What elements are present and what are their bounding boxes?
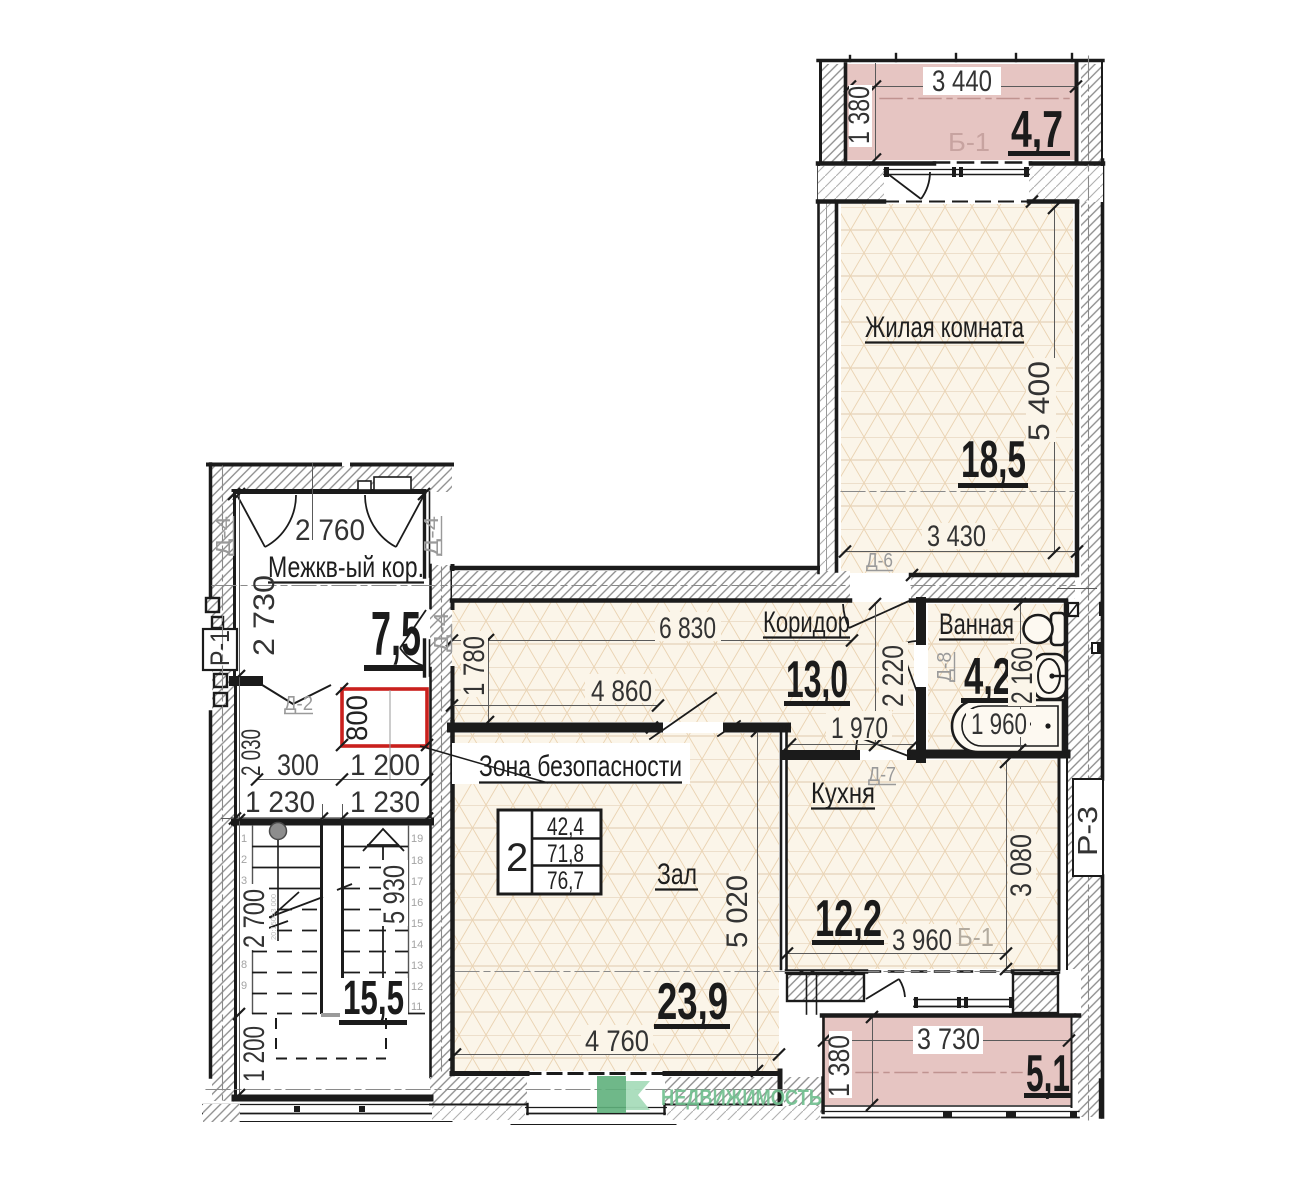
svg-text:4 860: 4 860 (591, 675, 652, 708)
svg-text:1 380: 1 380 (843, 86, 876, 144)
svg-text:3 430: 3 430 (927, 520, 986, 553)
svg-text:23,9: 23,9 (657, 973, 728, 1031)
svg-text:13: 13 (411, 960, 423, 972)
svg-text:300: 300 (277, 749, 319, 782)
svg-text:Д-8: Д-8 (934, 652, 956, 682)
svg-text:2 220: 2 220 (877, 645, 910, 707)
svg-text:19: 19 (411, 833, 423, 845)
svg-text:Б-1: Б-1 (948, 127, 990, 157)
svg-text:11: 11 (411, 1001, 422, 1013)
svg-text:5 400: 5 400 (1023, 361, 1056, 441)
svg-text:Зал: Зал (657, 858, 697, 891)
svg-text:2 760: 2 760 (295, 514, 365, 547)
svg-text:42,4: 42,4 (547, 813, 584, 841)
svg-text:Межкв-ый кор.: Межкв-ый кор. (268, 551, 424, 584)
svg-text:Д-7: Д-7 (868, 764, 896, 786)
svg-text:17: 17 (411, 876, 423, 888)
svg-text:Д-4: Д-4 (421, 516, 443, 556)
svg-text:18: 18 (411, 855, 423, 867)
svg-text:12: 12 (411, 981, 423, 993)
svg-text:Жилая комната: Жилая комната (865, 311, 1024, 344)
svg-text:1 780: 1 780 (458, 636, 491, 696)
svg-text:Д-6: Д-6 (866, 550, 893, 572)
svg-text:3 080: 3 080 (1005, 834, 1038, 897)
svg-text:Ванная: Ванная (939, 608, 1014, 641)
svg-text:4,7: 4,7 (1011, 101, 1063, 159)
svg-text:5 020: 5 020 (721, 875, 754, 948)
svg-text:1 200: 1 200 (350, 749, 420, 782)
svg-text:1 230: 1 230 (245, 786, 315, 819)
svg-text:76,7: 76,7 (547, 867, 584, 895)
svg-text:18,5: 18,5 (961, 431, 1026, 489)
svg-text:4,2: 4,2 (964, 648, 1012, 706)
svg-text:2 700: 2 700 (238, 889, 271, 948)
svg-text:15,5: 15,5 (343, 972, 404, 1025)
svg-text:Р-1: Р-1 (205, 630, 235, 666)
svg-text:4 760: 4 760 (585, 1025, 649, 1058)
svg-text:9: 9 (241, 980, 247, 992)
svg-text:Кухня: Кухня (811, 777, 875, 810)
svg-text:7,5: 7,5 (371, 600, 421, 669)
svg-text:Д-2: Д-2 (284, 693, 313, 715)
svg-text:6 830: 6 830 (659, 612, 716, 645)
svg-text:Б-1: Б-1 (957, 922, 994, 952)
svg-text:3 440: 3 440 (932, 65, 992, 98)
svg-text:2 730: 2 730 (248, 575, 281, 656)
svg-text:2 160: 2 160 (1006, 647, 1039, 704)
svg-text:14: 14 (411, 939, 423, 951)
svg-text:3 730: 3 730 (917, 1023, 980, 1056)
svg-text:1 230: 1 230 (350, 786, 420, 819)
svg-text:12,2: 12,2 (815, 890, 882, 948)
svg-text:13,0: 13,0 (786, 651, 848, 709)
svg-text:16: 16 (411, 897, 423, 909)
svg-text:2: 2 (506, 836, 528, 880)
svg-text:НЕДВИЖИМОСТЬ: НЕДВИЖИМОСТЬ (661, 1085, 822, 1110)
svg-text:15: 15 (411, 918, 423, 930)
svg-text:8: 8 (241, 959, 247, 971)
svg-text:Коридор: Коридор (763, 606, 850, 639)
svg-text:Д-4: Д-4 (213, 516, 235, 556)
svg-text:3 960: 3 960 (892, 924, 952, 957)
svg-text:2: 2 (241, 854, 247, 866)
svg-text:1 970: 1 970 (831, 712, 888, 745)
svg-text:2 030: 2 030 (236, 729, 266, 776)
svg-text:Р-3: Р-3 (1072, 806, 1103, 856)
svg-text:Зона безопасности: Зона безопасности (479, 750, 682, 783)
svg-text:1: 1 (241, 833, 247, 845)
svg-text:1 380: 1 380 (823, 1035, 856, 1097)
svg-text:1 200: 1 200 (238, 1026, 271, 1082)
svg-text:71,8: 71,8 (547, 840, 584, 868)
svg-text:5 930: 5 930 (378, 865, 411, 924)
svg-text:1 960: 1 960 (971, 708, 1027, 741)
svg-text:Д-4: Д-4 (431, 612, 453, 652)
svg-text:800: 800 (341, 695, 374, 741)
